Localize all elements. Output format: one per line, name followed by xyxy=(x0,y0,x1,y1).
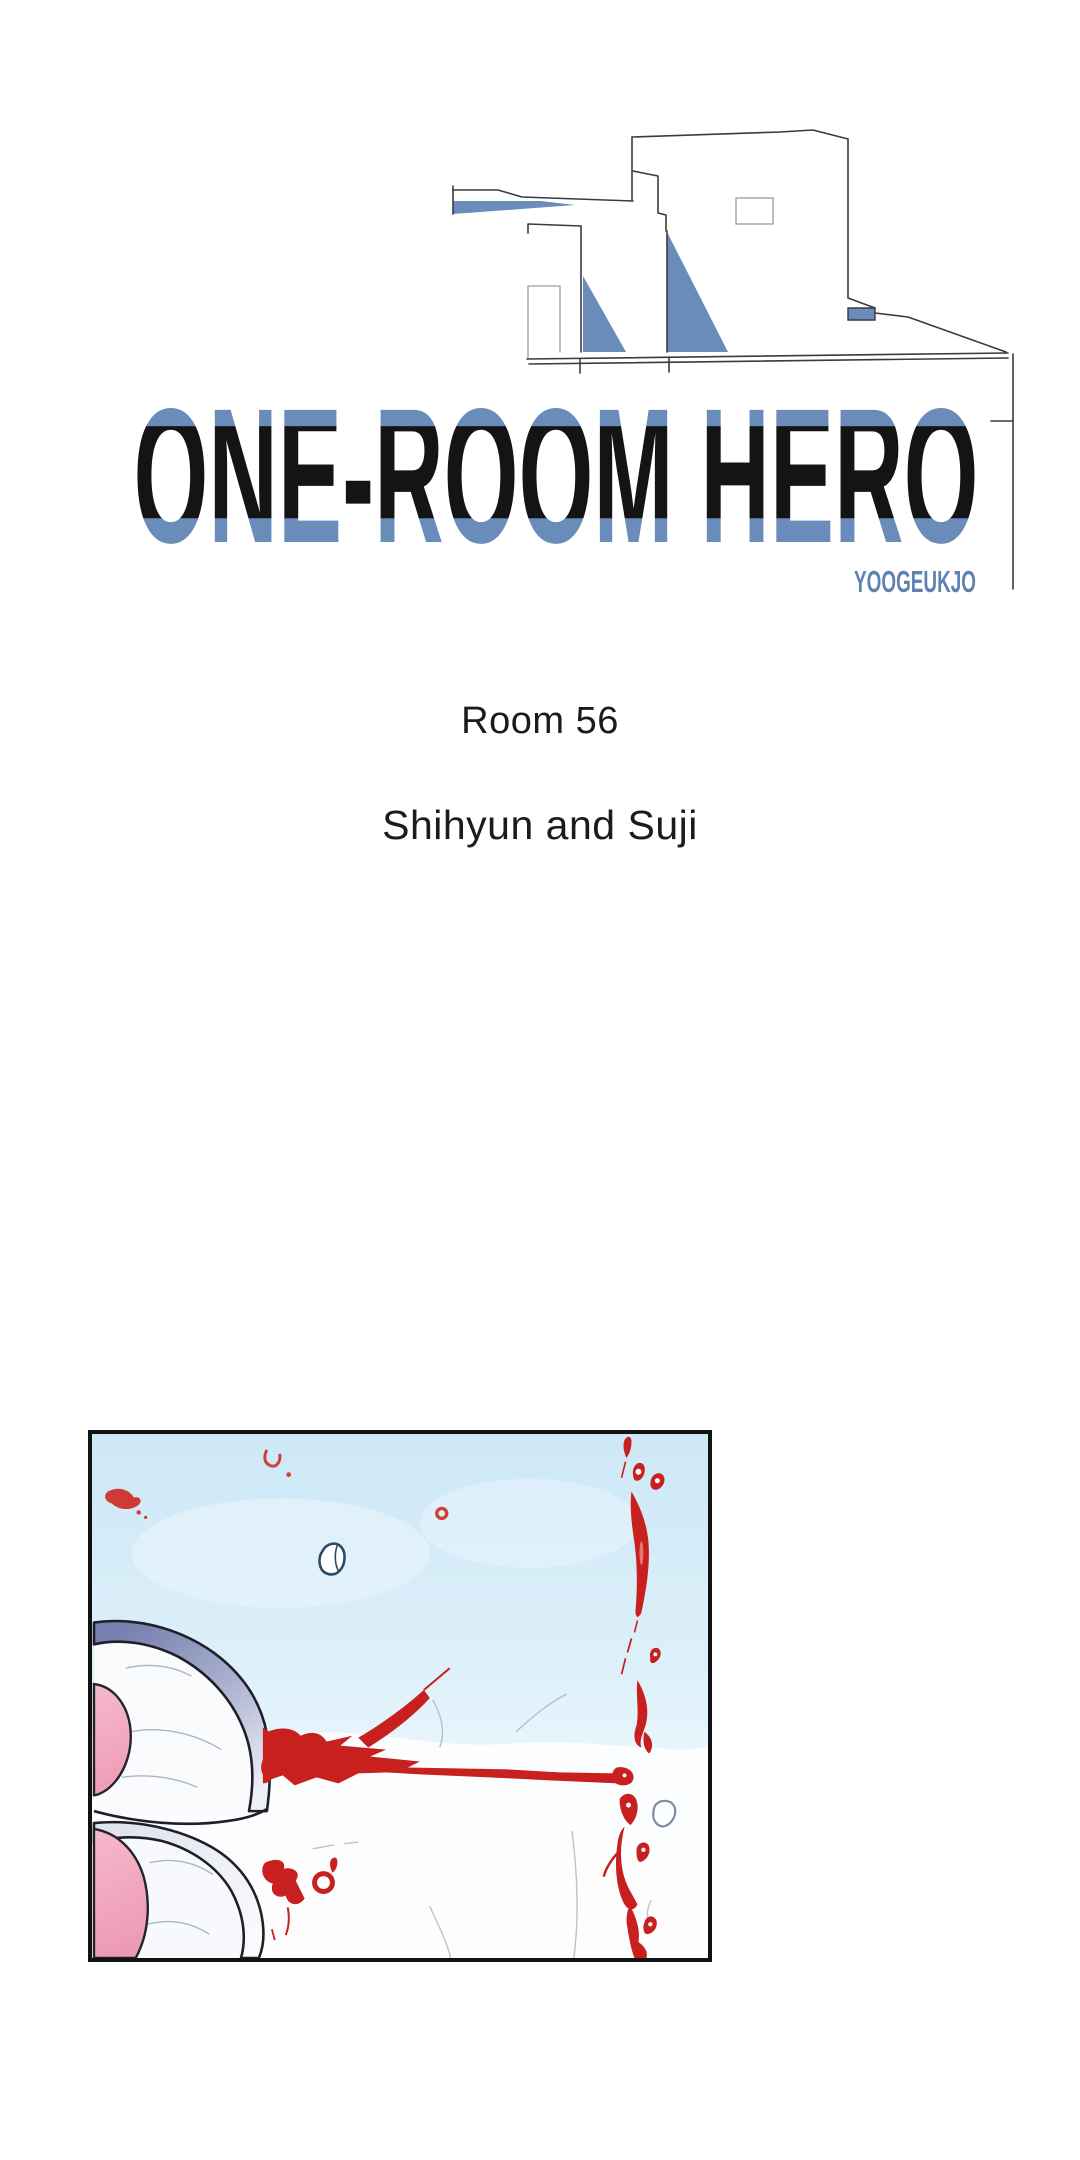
title-header-illustration: ONE-ROOM HERO YOOGEUKJO xyxy=(0,0,1080,660)
comic-panel xyxy=(88,1430,712,1962)
comic-panel-art xyxy=(92,1434,708,1958)
building-window xyxy=(736,198,773,224)
series-title: ONE-ROOM HERO xyxy=(134,368,979,583)
building-shadow-triangle-large xyxy=(667,232,728,352)
water-droplet xyxy=(653,1801,675,1827)
building-shadow-triangle-small xyxy=(583,276,626,352)
building-shadow-wedge xyxy=(453,201,575,214)
author-name: YOOGEUKJO xyxy=(854,564,976,599)
pebble xyxy=(319,1544,344,1575)
building-ledge xyxy=(848,308,875,320)
chapter-title: Shihyun and Suji xyxy=(0,805,1080,846)
webtoon-title-page: ONE-ROOM HERO YOOGEUKJO Room 56 Shihyun … xyxy=(0,0,1080,2160)
chapter-number: Room 56 xyxy=(0,702,1080,740)
